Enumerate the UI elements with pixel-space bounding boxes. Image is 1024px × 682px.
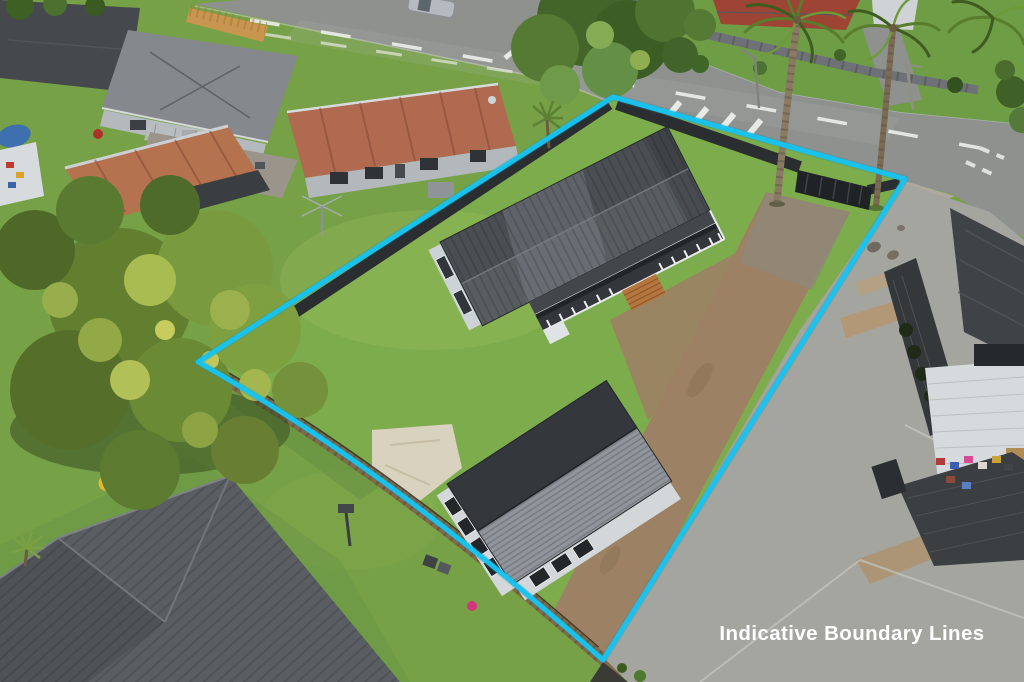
caption: Indicative Boundary Lines (719, 622, 984, 645)
manhole-cover (897, 225, 905, 231)
hedge-bush (907, 345, 921, 359)
shed-clutter (6, 162, 14, 168)
tree-canopy (684, 9, 716, 41)
tree-highlight (78, 318, 122, 362)
shed-clutter (16, 172, 24, 178)
cabbage-tree-trunk (25, 548, 27, 566)
palm-crown (793, 16, 801, 24)
red-house-window (470, 150, 486, 162)
clutter-item (936, 458, 945, 465)
shed-clutter (8, 182, 16, 188)
tree-highlight (210, 290, 250, 330)
tree-highlight (586, 21, 614, 49)
tree-canopy (56, 176, 124, 244)
clutter-item (950, 462, 959, 469)
red-house-window (330, 172, 348, 184)
aerial-photo-canvas: Indicative Boundary Lines (0, 0, 1024, 682)
basketball-backboard (338, 504, 354, 513)
tree-canopy (582, 42, 638, 98)
palm-crown (889, 24, 897, 32)
red-house-window (365, 167, 383, 179)
gray-house-window (130, 120, 146, 130)
tree-highlight (182, 412, 218, 448)
courtyard-clutter (255, 162, 265, 169)
red-house-porch (428, 182, 454, 198)
red-ball (93, 129, 103, 139)
tree-highlight (124, 254, 176, 306)
red-house-window (420, 158, 438, 170)
clutter-item (992, 456, 1001, 463)
clutter-item (962, 482, 971, 489)
clutter-item (946, 476, 955, 483)
edge-bush (634, 670, 646, 682)
clutter-item (964, 456, 973, 463)
clutter-item (1004, 464, 1013, 471)
right-edge-tree (995, 60, 1015, 80)
tree-canopy (662, 37, 698, 73)
aerial-photo: Indicative Boundary Lines (0, 0, 1024, 682)
tree-canopy (100, 430, 180, 510)
clutter-item (978, 462, 987, 469)
tree-highlight (155, 320, 175, 340)
tree-highlight (110, 360, 150, 400)
edge-bush (617, 663, 627, 673)
tree-canopy (140, 175, 200, 235)
pink-toy (467, 601, 477, 611)
tree-canopy (211, 416, 279, 484)
tree-canopy (540, 65, 580, 105)
right-house-window-band (974, 344, 1024, 366)
far-shrub (947, 77, 963, 93)
red-house-door (395, 164, 405, 178)
car-windshield (417, 0, 431, 12)
satellite-dish (488, 96, 496, 104)
far-shrub (834, 49, 846, 61)
hedge-bush (899, 323, 913, 337)
tree-highlight (42, 282, 78, 318)
tree-highlight (630, 50, 650, 70)
